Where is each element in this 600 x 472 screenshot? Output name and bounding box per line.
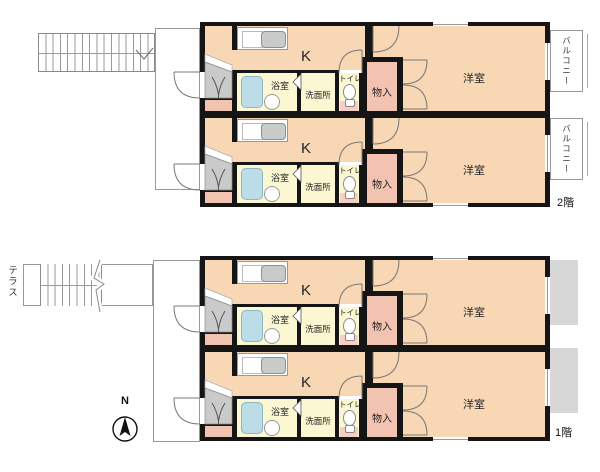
balcony-label: バルコニー: [561, 124, 573, 174]
balcony-unit1: バルコニー: [550, 30, 583, 92]
hall-door-arc: [339, 142, 362, 165]
bath-folding-door-mark: [293, 400, 301, 416]
hall-door-gap: [339, 396, 362, 399]
hall-door-gap: [339, 70, 362, 73]
kitchen-room-door-arc: [373, 352, 399, 378]
bath-folding-door-mark: [293, 166, 301, 182]
bath-folding-door-mark: [293, 74, 301, 90]
closet-door-arc-upper: [403, 386, 427, 410]
bath-folding-door-mark: [293, 308, 301, 324]
closet-door-arc-upper: [403, 60, 427, 84]
entrance-door-arc: [174, 164, 200, 190]
balcony-unit2: バルコニー: [550, 118, 583, 180]
floorplan-canvas: バルコニー バルコニー 浴室 洗面所 トイレ 物入 K 洋室: [0, 0, 600, 472]
second-floor-label: 2階: [557, 194, 574, 210]
hall-door-arc: [339, 50, 362, 73]
compass-icon: [105, 408, 145, 448]
closet-door-arc-lower: [403, 85, 427, 109]
closet-door-arc-upper: [403, 152, 427, 176]
entrance-door-arc: [174, 398, 200, 424]
kitchen-room-door-arc: [373, 118, 399, 144]
unit-annotations: [170, 256, 550, 349]
terrace-label: テラス: [4, 265, 18, 307]
entrance-door-arc: [174, 306, 200, 332]
unit-2f-1: 浴室 洗面所 トイレ 物入 K 洋室: [200, 22, 550, 115]
service-yard-unit1: [550, 260, 578, 325]
hall-door-arc: [339, 376, 362, 399]
kitchen-room-door-arc: [373, 260, 399, 286]
closet-door-arc-lower: [403, 411, 427, 435]
service-yard-unit2: [550, 348, 578, 413]
stairs-break-line: [86, 258, 116, 314]
first-floor-label: 1階: [555, 424, 572, 440]
balcony-label: バルコニー: [561, 36, 573, 86]
entrance-door-arc: [174, 72, 200, 98]
hall-door-arc: [339, 284, 362, 307]
hall-door-gap: [339, 304, 362, 307]
unit-annotations: [170, 348, 550, 441]
stairs-direction-arrow: [132, 42, 158, 64]
compass-north-label: N: [105, 395, 145, 407]
unit-1f-2: 浴室 洗面所 トイレ 物入 K 洋室: [200, 348, 550, 441]
unit-annotations: [170, 114, 550, 207]
closet-door-arc-lower: [403, 319, 427, 343]
unit-1f-1: 浴室 洗面所 トイレ 物入 K 洋室: [200, 256, 550, 349]
kitchen-room-door-arc: [373, 26, 399, 52]
unit-2f-2: 浴室 洗面所 トイレ 物入 K 洋室: [200, 114, 550, 207]
hall-door-gap: [339, 162, 362, 165]
closet-door-arc-lower: [403, 177, 427, 201]
closet-door-arc-upper: [403, 294, 427, 318]
unit-annotations: [170, 22, 550, 115]
